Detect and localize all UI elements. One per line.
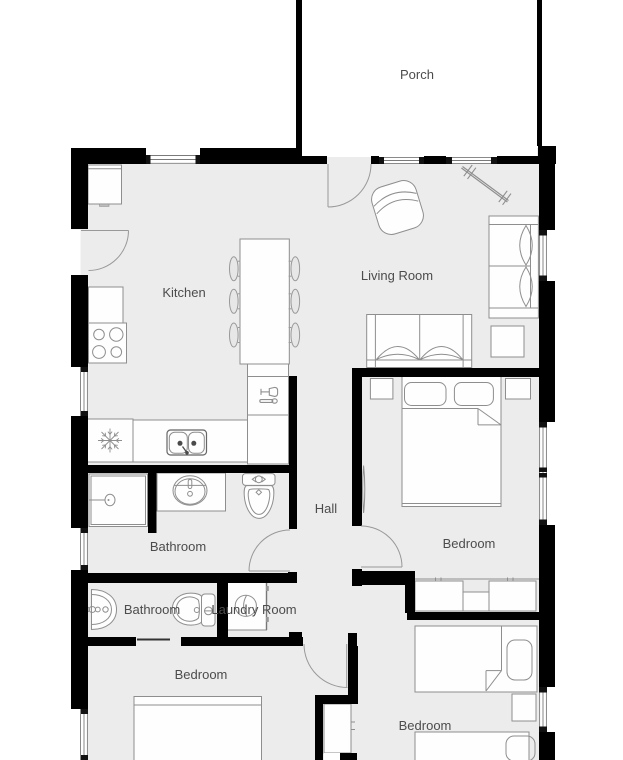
svg-text:Bedroom: Bedroom	[175, 667, 228, 682]
svg-text:Bedroom: Bedroom	[399, 718, 452, 733]
svg-text:Bathroom: Bathroom	[124, 602, 180, 617]
svg-text:Porch: Porch	[400, 67, 434, 82]
svg-text:Hall: Hall	[315, 501, 338, 516]
svg-text:Bathroom: Bathroom	[150, 539, 206, 554]
svg-text:Bedroom: Bedroom	[443, 536, 496, 551]
svg-text:Laundry Room: Laundry Room	[211, 602, 296, 617]
svg-text:Living Room: Living Room	[361, 268, 433, 283]
svg-text:Kitchen: Kitchen	[162, 285, 205, 300]
